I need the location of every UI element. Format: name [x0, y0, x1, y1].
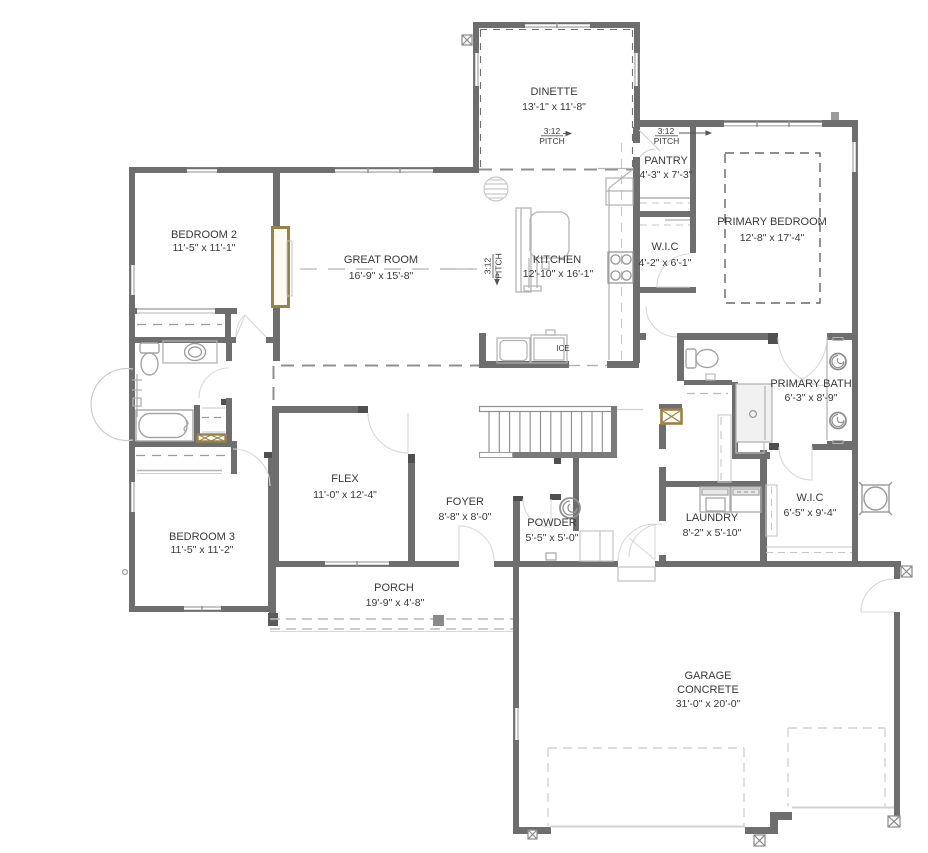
svg-text:BEDROOM 3: BEDROOM 3	[169, 531, 235, 543]
svg-text:8'-2" x 5'-10": 8'-2" x 5'-10"	[683, 527, 742, 539]
svg-text:FLEX: FLEX	[331, 473, 359, 485]
svg-text:ICE: ICE	[556, 344, 569, 353]
svg-text:31'-0" x 20'-0": 31'-0" x 20'-0"	[676, 698, 741, 710]
svg-text:W.I.C: W.I.C	[797, 492, 824, 504]
svg-text:5'-5" x 5'-0": 5'-5" x 5'-0"	[526, 532, 579, 544]
svg-text:11'-5" x 11'-2": 11'-5" x 11'-2"	[170, 544, 233, 556]
svg-text:3:12: 3:12	[658, 126, 675, 136]
svg-text:19'-9" x 4'-8": 19'-9" x 4'-8"	[366, 597, 425, 609]
svg-text:16'-9" x 15'-8": 16'-9" x 15'-8"	[349, 270, 414, 282]
svg-text:12'-10" x 16'-1": 12'-10" x 16'-1"	[523, 268, 594, 280]
svg-text:6'-3" x 8'-9": 6'-3" x 8'-9"	[785, 392, 838, 404]
svg-text:8'-8" x 8'-0": 8'-8" x 8'-0"	[439, 511, 492, 523]
svg-text:13'-1" x 11'-8": 13'-1" x 11'-8"	[522, 101, 586, 113]
svg-text:DINETTE: DINETTE	[530, 86, 577, 98]
svg-text:PITCH: PITCH	[654, 136, 680, 146]
svg-text:PITCH: PITCH	[539, 136, 565, 146]
svg-text:3:12: 3:12	[483, 257, 493, 274]
svg-text:PANTRY: PANTRY	[644, 155, 688, 167]
svg-text:POWDER: POWDER	[527, 517, 577, 529]
svg-text:BEDROOM 2: BEDROOM 2	[171, 229, 237, 241]
svg-text:3:12: 3:12	[544, 126, 561, 136]
svg-text:PRIMARY BEDROOM: PRIMARY BEDROOM	[717, 216, 827, 228]
svg-text:4'-3" x 7'-3": 4'-3" x 7'-3"	[640, 169, 693, 181]
svg-text:GARAGE: GARAGE	[684, 670, 731, 682]
svg-text:11'-0" x 12'-4": 11'-0" x 12'-4"	[313, 489, 377, 501]
svg-text:GREAT ROOM: GREAT ROOM	[344, 254, 418, 266]
svg-text:PRIMARY BATH: PRIMARY BATH	[770, 378, 851, 390]
svg-text:11'-5" x 11'-1": 11'-5" x 11'-1"	[172, 242, 235, 254]
svg-text:KITCHEN: KITCHEN	[533, 254, 581, 266]
svg-text:PITCH: PITCH	[494, 253, 504, 279]
svg-text:LAUNDRY: LAUNDRY	[686, 512, 739, 524]
svg-text:12'-8" x 17'-4": 12'-8" x 17'-4"	[740, 232, 805, 244]
svg-text:PORCH: PORCH	[374, 582, 414, 594]
svg-text:4'-2" x 6'-1": 4'-2" x 6'-1"	[639, 257, 692, 269]
svg-text:CONCRETE: CONCRETE	[677, 684, 739, 696]
svg-text:W.I.C: W.I.C	[652, 241, 679, 253]
svg-text:FOYER: FOYER	[446, 496, 484, 508]
svg-text:6'-5" x 9'-4": 6'-5" x 9'-4"	[784, 507, 837, 519]
